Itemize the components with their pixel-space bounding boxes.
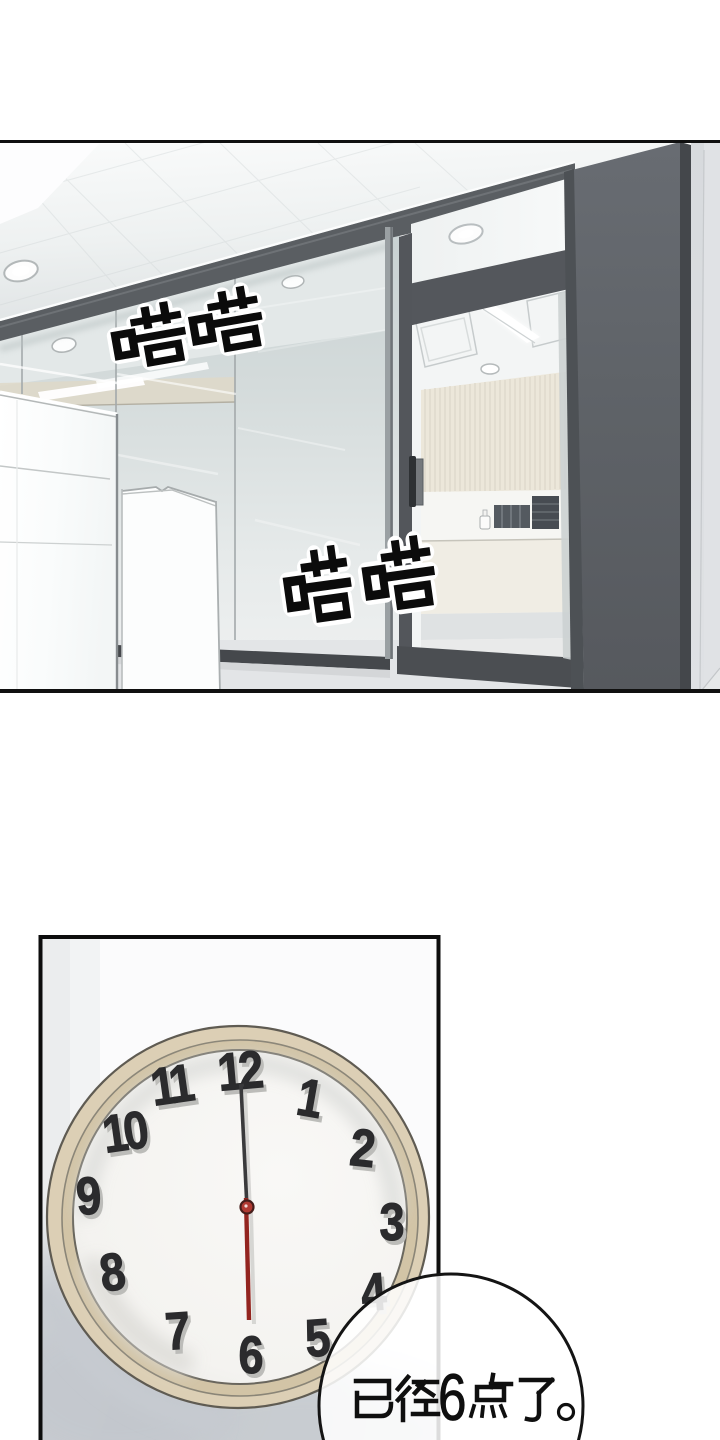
svg-text:7: 7 [163,1301,192,1362]
svg-text:6: 6 [438,1361,467,1435]
svg-text:6: 6 [238,1326,263,1385]
svg-text:3: 3 [379,1193,404,1252]
svg-text:9: 9 [74,1166,103,1227]
